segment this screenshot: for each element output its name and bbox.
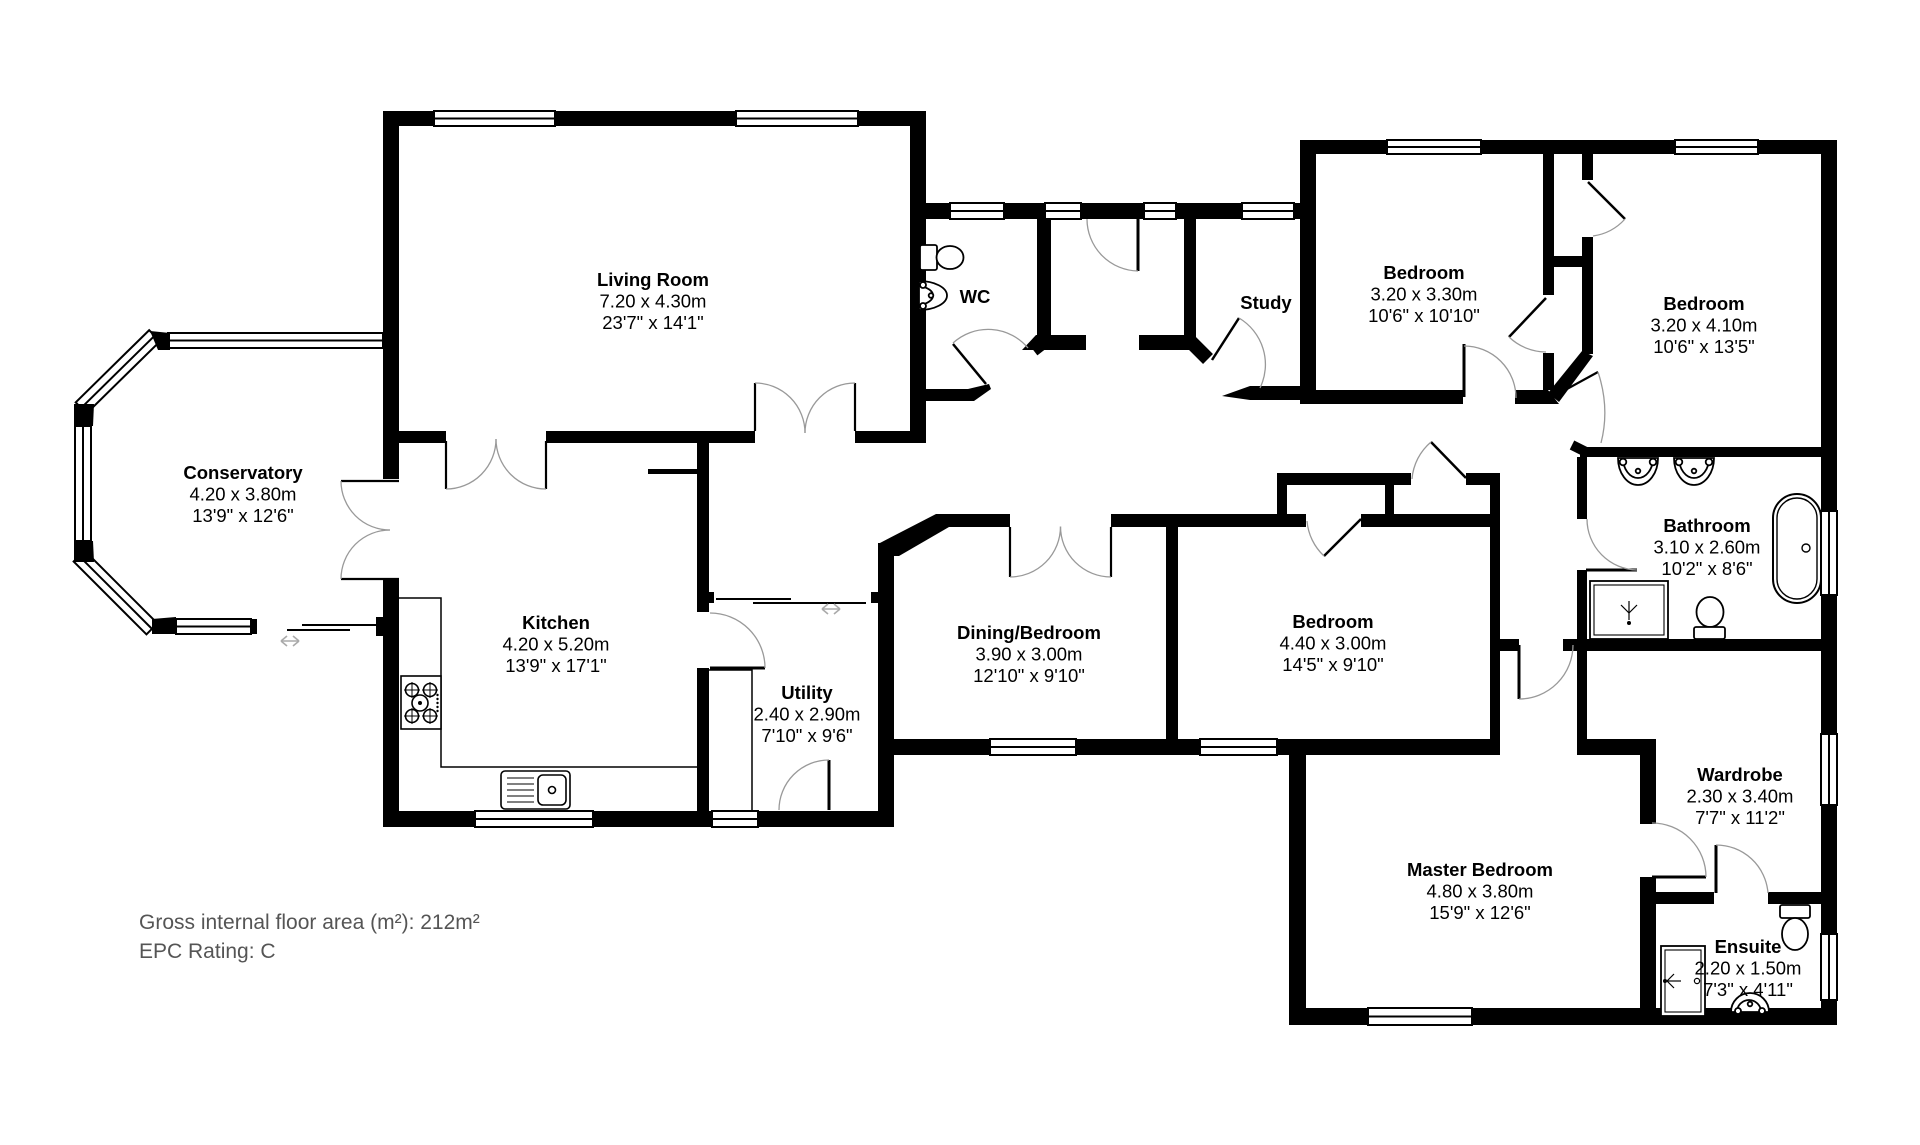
svg-text:Dining/Bedroom: Dining/Bedroom [957, 622, 1101, 643]
svg-text:4.80 x 3.80m: 4.80 x 3.80m [1427, 881, 1534, 902]
svg-text:WC: WC [960, 286, 991, 307]
svg-text:Master Bedroom: Master Bedroom [1407, 859, 1553, 880]
svg-text:4.20 x 3.80m: 4.20 x 3.80m [190, 484, 297, 505]
svg-text:Living Room: Living Room [597, 269, 709, 290]
svg-text:3.90 x 3.00m: 3.90 x 3.00m [976, 644, 1083, 665]
svg-text:Bathroom: Bathroom [1663, 515, 1750, 536]
svg-text:23'7" x 14'1": 23'7" x 14'1" [602, 312, 703, 333]
svg-text:14'5" x 9'10": 14'5" x 9'10" [1282, 654, 1383, 675]
svg-text:Bedroom: Bedroom [1383, 262, 1464, 283]
svg-text:2.40 x 2.90m: 2.40 x 2.90m [754, 704, 861, 725]
svg-text:3.10 x 2.60m: 3.10 x 2.60m [1654, 537, 1761, 558]
svg-text:Ensuite: Ensuite [1715, 936, 1782, 957]
svg-text:Kitchen: Kitchen [522, 612, 590, 633]
svg-text:10'2" x 8'6": 10'2" x 8'6" [1661, 558, 1752, 579]
svg-text:7'7" x 11'2": 7'7" x 11'2" [1695, 807, 1785, 828]
svg-text:Bedroom: Bedroom [1292, 611, 1373, 632]
svg-text:10'6" x 13'5": 10'6" x 13'5" [1653, 336, 1754, 357]
svg-text:Bedroom: Bedroom [1663, 293, 1744, 314]
svg-text:Study: Study [1240, 292, 1292, 313]
svg-text:4.40 x 3.00m: 4.40 x 3.00m [1280, 633, 1387, 654]
svg-text:3.20 x 4.10m: 3.20 x 4.10m [1651, 315, 1758, 336]
svg-text:Utility: Utility [781, 682, 833, 703]
svg-text:Wardrobe: Wardrobe [1697, 764, 1783, 785]
svg-text:7.20 x 4.30m: 7.20 x 4.30m [600, 291, 707, 312]
svg-text:7'3" x 4'11": 7'3" x 4'11" [1703, 979, 1793, 1000]
svg-text:Conservatory: Conservatory [183, 462, 303, 483]
svg-text:10'6" x 10'10": 10'6" x 10'10" [1368, 305, 1480, 326]
svg-text:13'9" x 12'6": 13'9" x 12'6" [192, 505, 293, 526]
svg-text:13'9" x 17'1": 13'9" x 17'1" [505, 655, 606, 676]
svg-text:4.20 x 5.20m: 4.20 x 5.20m [503, 634, 610, 655]
svg-text:Gross internal floor area (m²): Gross internal floor area (m²): 212m² [139, 911, 480, 934]
svg-text:3.20 x 3.30m: 3.20 x 3.30m [1371, 284, 1478, 305]
svg-text:12'10" x 9'10": 12'10" x 9'10" [973, 665, 1085, 686]
svg-text:2.30 x 3.40m: 2.30 x 3.40m [1687, 786, 1794, 807]
svg-text:7'10" x 9'6": 7'10" x 9'6" [761, 725, 852, 746]
svg-text:2.20 x 1.50m: 2.20 x 1.50m [1695, 958, 1802, 979]
svg-text:15'9" x 12'6": 15'9" x 12'6" [1429, 902, 1530, 923]
svg-text:EPC Rating: C: EPC Rating: C [139, 940, 276, 963]
